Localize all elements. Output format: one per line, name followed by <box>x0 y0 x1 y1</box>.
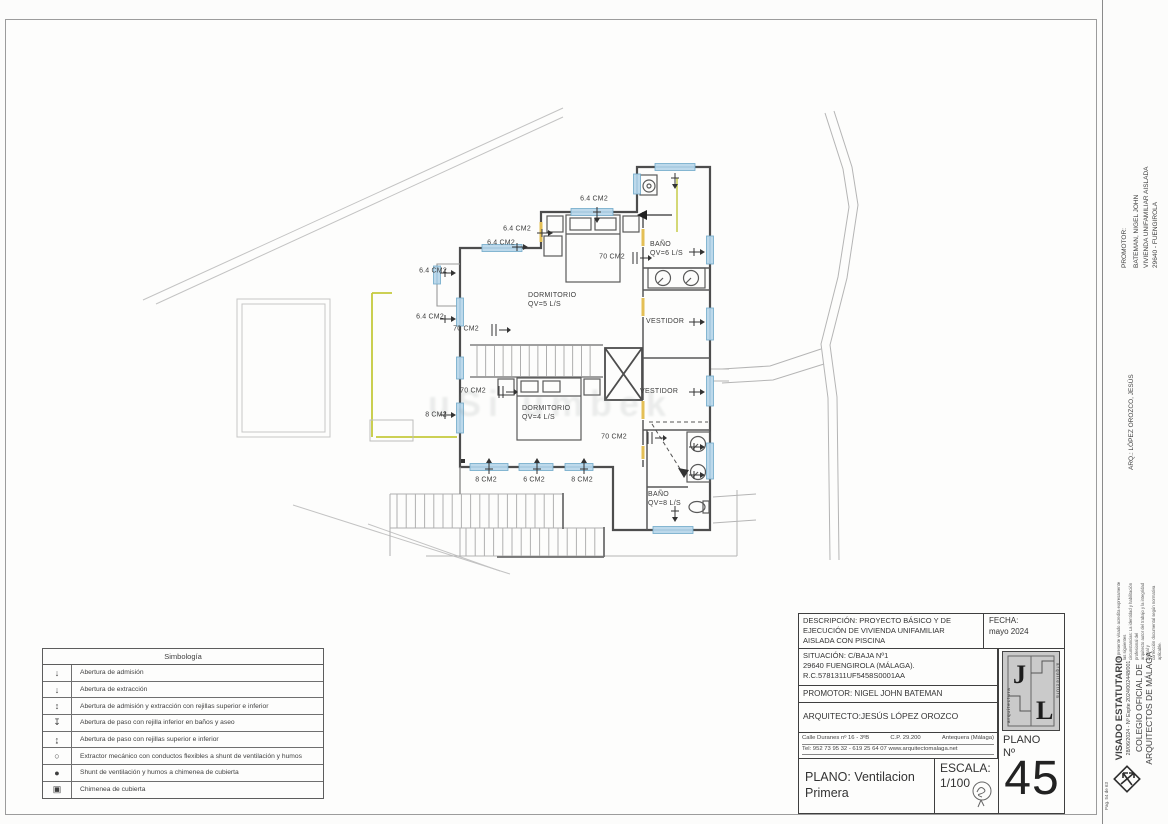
legend-symbol-icon: ↓ <box>43 665 72 681</box>
visa-architect-block: ARQ.: LÓPEZ OROZCO, JESÚS <box>1128 325 1138 470</box>
room-label: DORMITORIOQV=5 L/S <box>528 291 576 310</box>
title-block: DESCRIPCIÓN: PROYECTO BÁSICO Y DE EJECUC… <box>798 613 1065 814</box>
legend-row: ↨Abertura de paso con rejillas superior … <box>43 732 323 749</box>
visa-stamp-block: VISADO ESTATUTARIO 28/06/2024 - Nº Expte… <box>1114 634 1160 782</box>
size-label: 70 CM2 <box>460 388 486 395</box>
legend-row-text: Shunt de ventilación y humos a chimenea … <box>72 769 323 776</box>
size-label: 8 CM2 <box>475 477 497 484</box>
legend-row: ●Shunt de ventilación y humos a chimenea… <box>43 765 323 782</box>
promoter-cell: PROMOTOR: NIGEL JOHN BATEMAN <box>799 686 998 703</box>
legend-symbol-icon: ↧ <box>43 715 72 731</box>
pool-outline <box>237 299 330 437</box>
legend-row-text: Abertura de admisión y extracción con re… <box>72 703 323 710</box>
svg-text:L: L <box>1036 696 1053 725</box>
visa-promoter-line: BATEMAN, NIGEL JOHN <box>1132 108 1142 268</box>
description-line: AISLADA CON PISCINA <box>803 636 979 646</box>
date-cell: FECHA: mayo 2024 <box>984 614 1064 649</box>
size-label: 8 CM2 <box>425 412 447 419</box>
room-label: DORMITORIOQV=4 L/S <box>522 404 570 423</box>
description-line: EJECUCIÓN DE VIVIENDA UNIFAMILIAR <box>803 626 979 636</box>
location-line: SITUACIÓN: C/BAJA Nº1 <box>803 651 993 661</box>
visa-promoter-line: VIVIENDA UNIFAMILIAR AISLADA <box>1142 108 1152 268</box>
plan-number-value: 45 <box>999 747 1065 812</box>
legend-symbol-icon: ↨ <box>43 732 72 748</box>
location-line: R.C.5781311UF5458S0001AA <box>803 671 993 681</box>
legend-row: ▣Chimenea de cubierta <box>43 782 323 798</box>
legend-table: Simbología ↓Abertura de admisión↓Abertur… <box>42 648 324 799</box>
visa-promoter-label: PROMOTOR: <box>1120 108 1130 268</box>
architect-logo: J L arquitectura arquitectura <box>1002 651 1060 731</box>
road-lines <box>426 111 858 560</box>
legend-row-text: Chimenea de cubierta <box>72 786 323 793</box>
legend-row-text: Abertura de extracción <box>72 686 323 693</box>
size-label: 70 CM2 <box>453 326 479 333</box>
size-label: 6.4 CM2 <box>419 268 447 275</box>
description-line: DESCRIPCIÓN: PROYECTO BÁSICO Y DE <box>803 616 979 626</box>
address-cell: Calle Duranes nº 16 - 3ºB C.P. 29.200 An… <box>799 733 998 759</box>
legend-row-text: Abertura de paso con rejilla inferior en… <box>72 719 323 726</box>
room-label: VESTIDOR <box>640 387 678 396</box>
legend-symbol-icon: ▣ <box>43 782 72 798</box>
room-label: BAÑOQV=8 L/S <box>648 490 681 509</box>
architect-cell: ARQUITECTO:JESÚS LÓPEZ OROZCO <box>799 703 998 733</box>
legend-row-text: Extractor mecánico con conductos flexibl… <box>72 753 323 760</box>
room-label: VESTIDOR <box>646 317 684 326</box>
address-cp: C.P. 29.200 <box>890 735 920 743</box>
size-label: 6.4 CM2 <box>580 196 608 203</box>
visa-promoter-block: PROMOTOR: BATEMAN, NIGEL JOHN VIVIENDA U… <box>1120 108 1156 268</box>
size-label: 6.4 CM2 <box>503 226 531 233</box>
legend-symbol-icon: ○ <box>43 748 72 764</box>
location-line: 29640 FUENGIROLA (MÁLAGA). <box>803 661 993 671</box>
date-label: FECHA: <box>989 616 1059 627</box>
exterior-stairs <box>390 493 604 557</box>
college-logo-icon <box>1112 764 1144 798</box>
legend-row-text: Abertura de paso con rejillas superior e… <box>72 736 323 743</box>
legend-symbol-icon: ● <box>43 765 72 781</box>
visa-promoter-line: 29640 - FUENGIROLA <box>1151 108 1161 268</box>
description-cell: DESCRIPCIÓN: PROYECTO BÁSICO Y DE EJECUC… <box>799 614 984 649</box>
address-street: Calle Duranes nº 16 - 3ºB <box>802 735 869 743</box>
legend-symbol-icon: ↕ <box>43 698 72 714</box>
size-label: 70 CM2 <box>599 254 625 261</box>
svg-text:arquitectura: arquitectura <box>1056 663 1061 699</box>
title-block-right-column: J L arquitectura arquitectura PLANO Nº 4… <box>998 649 1064 813</box>
scale-cell: ESCALA: 1/100 <box>935 759 998 813</box>
address-city: Antequera (Málaga) <box>942 735 994 743</box>
visa-college-line: ARQUITECTOS DE MÁLAGA <box>1144 634 1154 782</box>
size-label: 6 CM2 <box>523 477 545 484</box>
address-phone: Tel: 952 73 95 32 - 619 25 64 07 www.arq… <box>802 745 994 755</box>
size-label: 8 CM2 <box>571 477 593 484</box>
legend-row-text: Abertura de admisión <box>72 669 323 676</box>
legend-title: Simbología <box>43 649 323 665</box>
plan-name-cell: PLANO: Ventilacion Primera <box>799 759 935 813</box>
room-label: BAÑOQV=6 L/S <box>650 240 683 259</box>
plan-name-line2: Primera <box>805 785 934 801</box>
signature-stamp <box>969 779 995 809</box>
svg-text:arquitectura: arquitectura <box>1006 687 1011 723</box>
visa-expediente: 28/06/2024 - Nº Expte 2024/002448/001 <box>1126 634 1132 782</box>
legend-row: ↓Abertura de extracción <box>43 682 323 699</box>
site-boundary-lines <box>143 108 563 574</box>
date-value: mayo 2024 <box>989 627 1059 638</box>
size-label: 70 CM2 <box>601 434 627 441</box>
visa-title: VISADO ESTATUTARIO <box>1114 634 1125 782</box>
drawing-sheet: uSi umbek 6.4 CM26.4 CM26.4 CM26.4 CM26.… <box>0 0 1168 824</box>
location-cell: SITUACIÓN: C/BAJA Nº1 29640 FUENGIROLA (… <box>799 649 998 686</box>
visa-column-divider <box>1102 0 1103 824</box>
visa-college-line: COLEGIO OFICIAL DE <box>1134 634 1144 782</box>
legend-symbol-icon: ↓ <box>43 682 72 698</box>
size-label: 6.4 CM2 <box>487 240 515 247</box>
svg-text:J: J <box>1013 660 1026 689</box>
scale-label: ESCALA: <box>940 761 998 776</box>
interior-stair <box>470 345 603 377</box>
size-label: 6.4 CM2 <box>416 314 444 321</box>
legend-row: ↕Abertura de admisión y extracción con r… <box>43 698 323 715</box>
visa-page-number: Pag. 54 de 63 <box>1104 768 1112 810</box>
plan-name-line1: PLANO: Ventilacion <box>805 769 934 785</box>
legend-row: ↧Abertura de paso con rejilla inferior e… <box>43 715 323 732</box>
legend-row: ○Extractor mecánico con conductos flexib… <box>43 748 323 765</box>
legend-row: ↓Abertura de admisión <box>43 665 323 682</box>
